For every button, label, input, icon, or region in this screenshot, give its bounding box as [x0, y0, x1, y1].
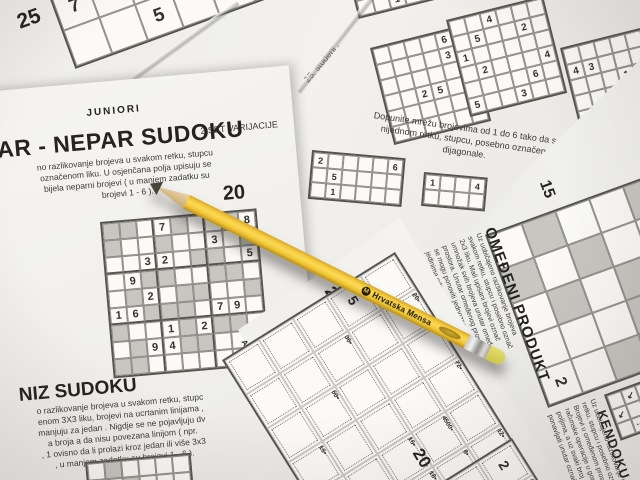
photo-of-sudoku-papers: 25 3187276558 25. studeni . 1 5123 6325 …: [0, 0, 640, 480]
grid-cell: [327, 153, 343, 169]
grid-cell: [171, 233, 189, 251]
grid-cell: [453, 192, 469, 208]
grid-cell: [191, 266, 209, 284]
grid-cell: 3: [205, 230, 223, 248]
grid-cell: [156, 473, 174, 480]
grid-cell: 1: [325, 183, 341, 199]
grid-cell: [154, 235, 172, 253]
grid-cell: [139, 475, 157, 480]
grid-cell: [129, 339, 147, 357]
grid-cell: 2: [313, 152, 329, 168]
grid-cell: [87, 462, 105, 480]
grid-cell: [210, 281, 228, 299]
grid-cell: [138, 236, 156, 254]
grid-cell: [438, 190, 454, 206]
grid-cell: [123, 476, 141, 480]
grid-cell: 1: [110, 307, 128, 325]
grid-cell: [371, 172, 387, 188]
grid-cell: 4: [163, 336, 181, 354]
grid-cell: [385, 189, 401, 205]
grid-cell: [148, 355, 166, 373]
grid-cell: 1: [425, 174, 441, 190]
page-number-20: 20: [222, 181, 246, 206]
grid-cell: [104, 461, 122, 479]
grid-cell: [104, 239, 122, 257]
grid-cell: [545, 76, 564, 95]
grid-cell: [372, 157, 388, 173]
grid-cell: [194, 300, 212, 318]
mensa-logo-icon: M: [360, 285, 372, 297]
grid-cell: [355, 186, 371, 202]
grid-cell: [342, 155, 358, 171]
grid-cell: 4: [469, 178, 485, 194]
grid-cell: [199, 350, 217, 368]
grid-cell: [174, 267, 192, 285]
mini-grid-low-a: 2651: [308, 150, 406, 207]
grid-cell: 9: [228, 297, 246, 315]
grid-cell: [439, 175, 455, 191]
grid-cell: [176, 284, 194, 302]
grid-cell: 9: [124, 272, 142, 290]
grid-cell: [172, 455, 190, 473]
grid-cell: [165, 353, 183, 371]
grid-cell: [122, 255, 140, 273]
grid-cell: [136, 219, 154, 237]
grid-cell: [173, 250, 191, 268]
grid-cell: [125, 289, 143, 307]
grid-cell: [224, 246, 242, 264]
grid-cell: 6: [127, 306, 145, 324]
grid-cell: 1: [387, 0, 406, 9]
grid-cell: [179, 318, 197, 336]
grid-cell: 9: [146, 338, 164, 356]
grid-cell: [111, 324, 129, 342]
grid-cell: [102, 222, 120, 240]
grid-cell: [107, 273, 125, 291]
grid-cell: [121, 459, 139, 477]
grid-cell: [131, 356, 149, 374]
grid-cell: [190, 249, 208, 267]
grid-cell: [160, 303, 178, 321]
grid-cell: [242, 261, 260, 279]
grid-cell: [121, 238, 139, 256]
grid-cell: [310, 182, 326, 198]
grid-cell: 3: [139, 253, 157, 271]
grid-cell: 2: [156, 252, 174, 270]
grid-cell: [188, 232, 206, 250]
grid-cell: [114, 358, 132, 376]
grid-cell: 7: [211, 298, 229, 316]
grid-cell: [138, 458, 156, 476]
grid-cell: [128, 322, 146, 340]
grid-cell: [197, 333, 215, 351]
grid-cell: [468, 193, 484, 209]
grid-cell: [227, 280, 245, 298]
grid-cell: 6: [387, 159, 403, 175]
grid-cell: [386, 174, 402, 190]
grid-cell: [208, 264, 226, 282]
grid-cell: [370, 187, 386, 203]
grid-cell: [159, 286, 177, 304]
grid-cell: [372, 0, 391, 13]
grid-cell: [119, 221, 137, 239]
grid-cell: [180, 335, 198, 353]
grid-cell: [173, 472, 191, 480]
mini-grid-low-b: 14: [421, 172, 488, 211]
grid-cell: [311, 167, 327, 183]
grid-cell: [356, 171, 372, 187]
grid-cell: [454, 177, 470, 193]
grid-cell: 7: [153, 218, 171, 236]
grid-cell: [341, 170, 357, 186]
grid-cell: 2: [196, 317, 214, 335]
grid-cell: [145, 321, 163, 339]
grid-cell: [214, 332, 232, 350]
grid-cell: [225, 263, 243, 281]
grid-cell: [423, 189, 439, 205]
grid-cell: [193, 283, 211, 301]
grid-cell: [113, 341, 131, 359]
grid-cell: [213, 315, 231, 333]
grid-cell: [170, 216, 188, 234]
grid-cell: [207, 247, 225, 265]
grid-cell: [357, 156, 373, 172]
grid-cell: [340, 185, 356, 201]
grid-cell: [105, 256, 123, 274]
grid-cell: [143, 304, 161, 322]
grid-cell: 1: [162, 320, 180, 338]
grid-cell: [140, 270, 158, 288]
grid-cell: 5: [241, 244, 259, 262]
grid-cell: [245, 295, 263, 313]
grid-cell: [157, 269, 175, 287]
grid-cell: [244, 278, 262, 296]
grid-cell: 5: [326, 168, 342, 184]
grid-cell: [108, 290, 126, 308]
grid-cell: [182, 352, 200, 370]
grid-cell: [155, 456, 173, 474]
grid-cell: [177, 301, 195, 319]
grid-cell: 2: [142, 287, 160, 305]
